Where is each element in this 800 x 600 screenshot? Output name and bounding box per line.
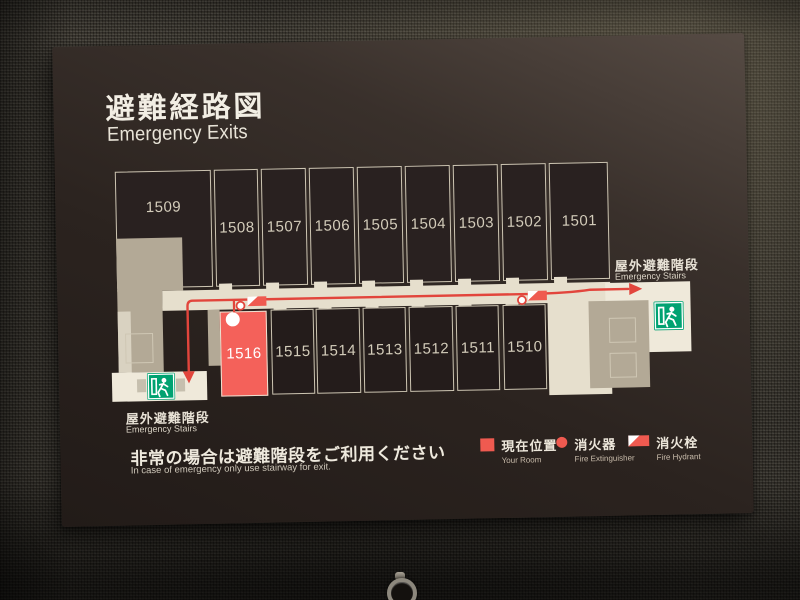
legend-label-jp: 消火栓 bbox=[656, 432, 700, 452]
room-1511: 1511 bbox=[456, 305, 501, 391]
legend-your-room: 現在位置 Your Room bbox=[480, 435, 558, 466]
exit-running-man-icon bbox=[147, 373, 176, 401]
door-tab bbox=[458, 279, 471, 286]
room-number: 1504 bbox=[411, 215, 447, 233]
door-tab bbox=[266, 282, 279, 289]
room-number: 1514 bbox=[321, 342, 357, 360]
room-1516-current: 1516 bbox=[220, 311, 269, 397]
right-stairs-label-en: Emergency Stairs bbox=[615, 270, 686, 281]
wall-photo: 避難経路図 Emergency Exits 1509 1508 1507 150… bbox=[0, 0, 800, 600]
your-room-square-icon bbox=[480, 438, 494, 451]
room-number: 1515 bbox=[275, 343, 311, 361]
metal-door-hook bbox=[385, 572, 415, 600]
room-number: 1505 bbox=[363, 216, 399, 234]
fire-extinguisher-icon bbox=[556, 437, 567, 448]
door-tab bbox=[362, 281, 375, 288]
legend-label-jp: 消火器 bbox=[574, 433, 634, 453]
legend-fire-extinguisher: 消火器 Fire Extinguisher bbox=[556, 433, 635, 464]
door-tab bbox=[506, 278, 519, 285]
room-number: 1511 bbox=[461, 339, 496, 357]
door-tab bbox=[410, 280, 423, 287]
room-1502: 1502 bbox=[501, 163, 548, 281]
exit-running-man-icon bbox=[653, 300, 684, 331]
fire-hydrant-icon bbox=[628, 435, 649, 446]
room-number: 1503 bbox=[459, 214, 495, 232]
room-1515: 1515 bbox=[271, 309, 316, 395]
room-1510: 1510 bbox=[503, 304, 548, 390]
room-number: 1502 bbox=[507, 213, 543, 231]
room-1508: 1508 bbox=[214, 169, 260, 287]
legend-label-en: Fire Hydrant bbox=[657, 452, 701, 462]
room-number: 1506 bbox=[315, 217, 351, 235]
room-1505: 1505 bbox=[357, 166, 404, 284]
room-number: 1516 bbox=[226, 345, 262, 363]
room-1512: 1512 bbox=[409, 306, 455, 392]
room-number: 1510 bbox=[507, 338, 543, 356]
legend-label-en: Your Room bbox=[502, 455, 558, 465]
room-number: 1501 bbox=[561, 212, 597, 230]
room-number: 1513 bbox=[367, 341, 403, 359]
right-elevator-outline-1 bbox=[609, 317, 636, 343]
room-1506: 1506 bbox=[309, 167, 356, 285]
sign-title-english: Emergency Exits bbox=[107, 121, 248, 147]
legend-label-jp: 現在位置 bbox=[501, 435, 557, 455]
room-1504: 1504 bbox=[405, 165, 452, 283]
door-tab bbox=[137, 379, 146, 392]
room-1514: 1514 bbox=[316, 308, 362, 394]
room-number: 1509 bbox=[146, 198, 182, 216]
room-1513: 1513 bbox=[363, 307, 408, 393]
left-stairs-label-en: Emergency Stairs bbox=[126, 423, 197, 434]
legend-fire-hydrant: 消火栓 Fire Hydrant bbox=[628, 432, 701, 462]
room-number: 1512 bbox=[414, 340, 450, 358]
door-tab bbox=[219, 283, 232, 290]
right-elevator-outline-2 bbox=[610, 352, 637, 378]
left-stairwell-notch bbox=[116, 237, 183, 291]
room-1501: 1501 bbox=[549, 162, 610, 280]
door-tab bbox=[554, 277, 567, 284]
legend-label-en: Fire Extinguisher bbox=[575, 453, 635, 463]
emergency-exit-sign: 避難経路図 Emergency Exits 1509 1508 1507 150… bbox=[52, 33, 753, 527]
hook-ring bbox=[387, 578, 417, 600]
room-1507: 1507 bbox=[261, 168, 308, 286]
left-wall-sliver bbox=[208, 310, 221, 366]
door-tab bbox=[314, 282, 327, 289]
left-elevator-outline bbox=[125, 333, 154, 364]
door-tab bbox=[176, 378, 185, 391]
room-number: 1507 bbox=[267, 218, 303, 236]
room-1503: 1503 bbox=[453, 164, 500, 282]
room-number: 1508 bbox=[219, 219, 255, 237]
